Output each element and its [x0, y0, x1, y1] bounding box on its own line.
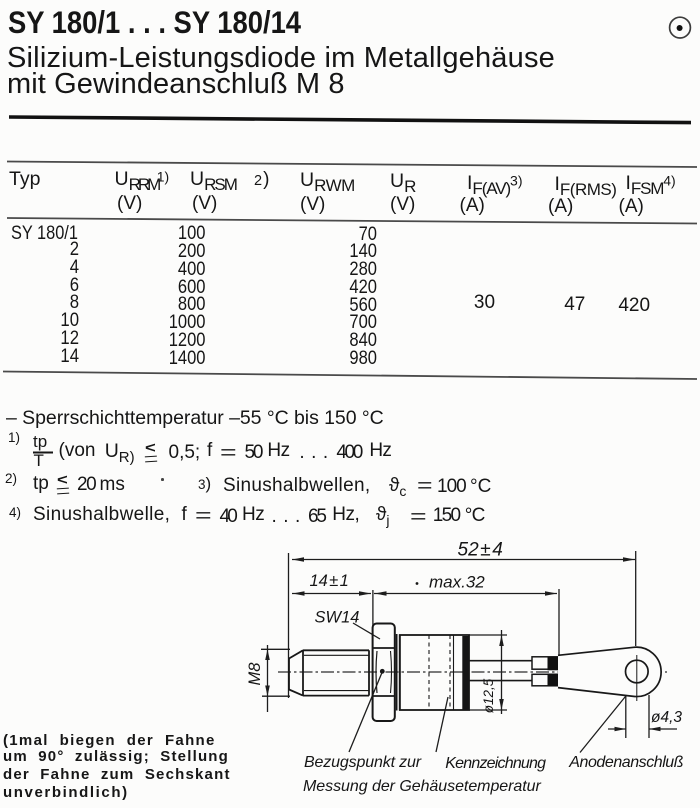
svg-text:14 ± 1: 14 ± 1 — [310, 572, 349, 590]
svg-text:SW14: SW14 — [315, 609, 360, 627]
svg-text:52 ± 4: 52 ± 4 — [458, 540, 503, 561]
svg-text:ø12,5: ø12,5 — [481, 678, 496, 713]
svg-text:ø4,3: ø4,3 — [651, 709, 682, 726]
svg-text:M8: M8 — [246, 662, 264, 686]
svg-text:max.32: max.32 — [429, 573, 485, 592]
